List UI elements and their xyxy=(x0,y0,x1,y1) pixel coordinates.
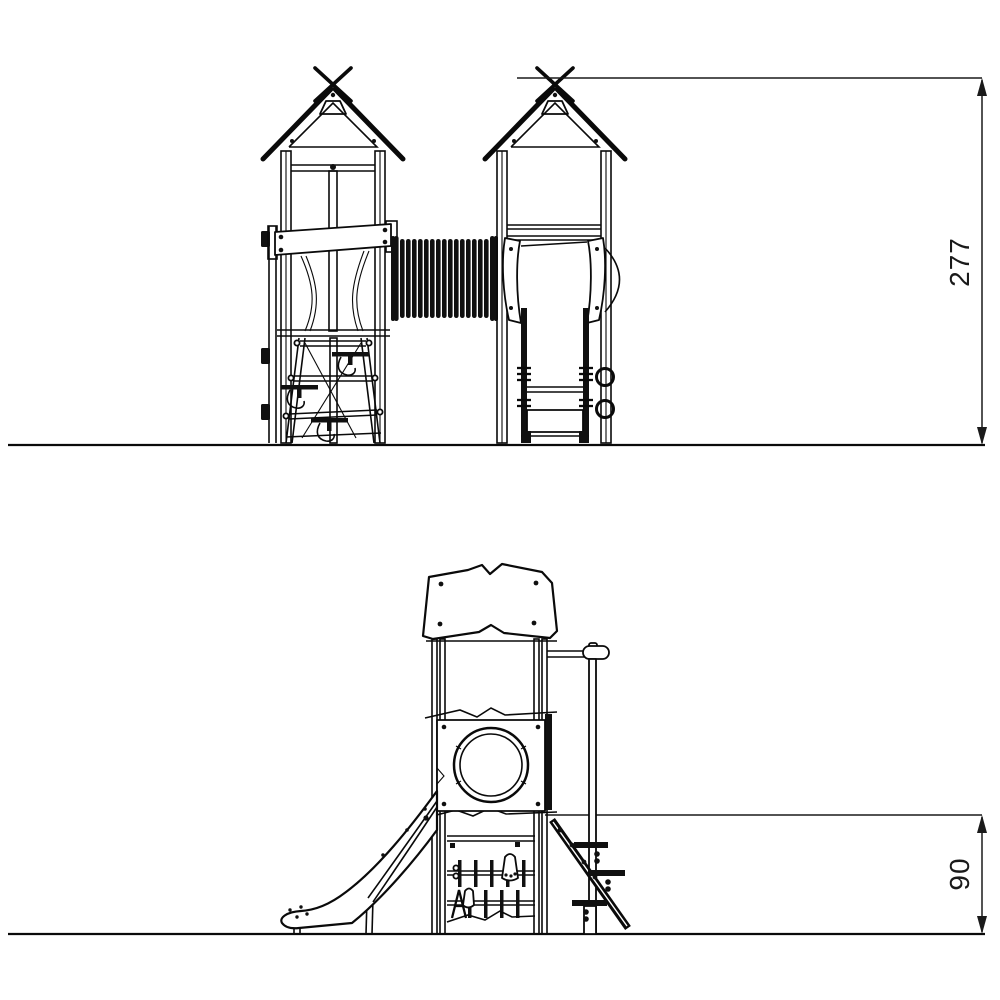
right-tower-slide-entry xyxy=(503,238,620,323)
front-right-tower xyxy=(485,68,625,443)
left-tower-climbing-frame xyxy=(281,338,383,443)
fireman-pole xyxy=(589,659,596,934)
right-tower-ladder xyxy=(517,308,593,443)
height-dimension-side: 90 xyxy=(944,815,987,934)
dimension-label-277: 277 xyxy=(944,237,975,287)
left-tower-roof xyxy=(263,68,403,159)
pole-support-rail xyxy=(547,643,609,659)
side-elevation: 90 xyxy=(8,564,987,934)
front-elevation: 277 xyxy=(8,68,987,445)
left-tower-curtain xyxy=(301,251,369,331)
arrow-down-icon xyxy=(977,916,987,934)
arrow-up-icon xyxy=(977,815,987,833)
crawl-tube xyxy=(391,236,498,321)
climbing-wall-panel xyxy=(447,836,535,922)
left-tower-posts xyxy=(281,151,385,443)
tunnel-ring-outer xyxy=(454,728,528,802)
front-left-tower xyxy=(261,68,403,443)
panel-edge-plate xyxy=(545,714,552,810)
dimension-label-90: 90 xyxy=(944,857,975,890)
arrow-up-icon xyxy=(977,78,987,96)
climbing-hold xyxy=(463,889,474,908)
tunnel-panel xyxy=(437,720,545,811)
slide-body xyxy=(281,791,437,928)
playground-technical-drawing: 277 xyxy=(0,0,1000,1000)
right-tower-rails xyxy=(507,225,601,240)
right-tower-roof xyxy=(485,68,625,159)
arrow-down-icon xyxy=(977,427,987,445)
side-roof xyxy=(423,564,557,641)
slide xyxy=(281,791,437,934)
left-tower-balcony-board xyxy=(268,221,397,259)
